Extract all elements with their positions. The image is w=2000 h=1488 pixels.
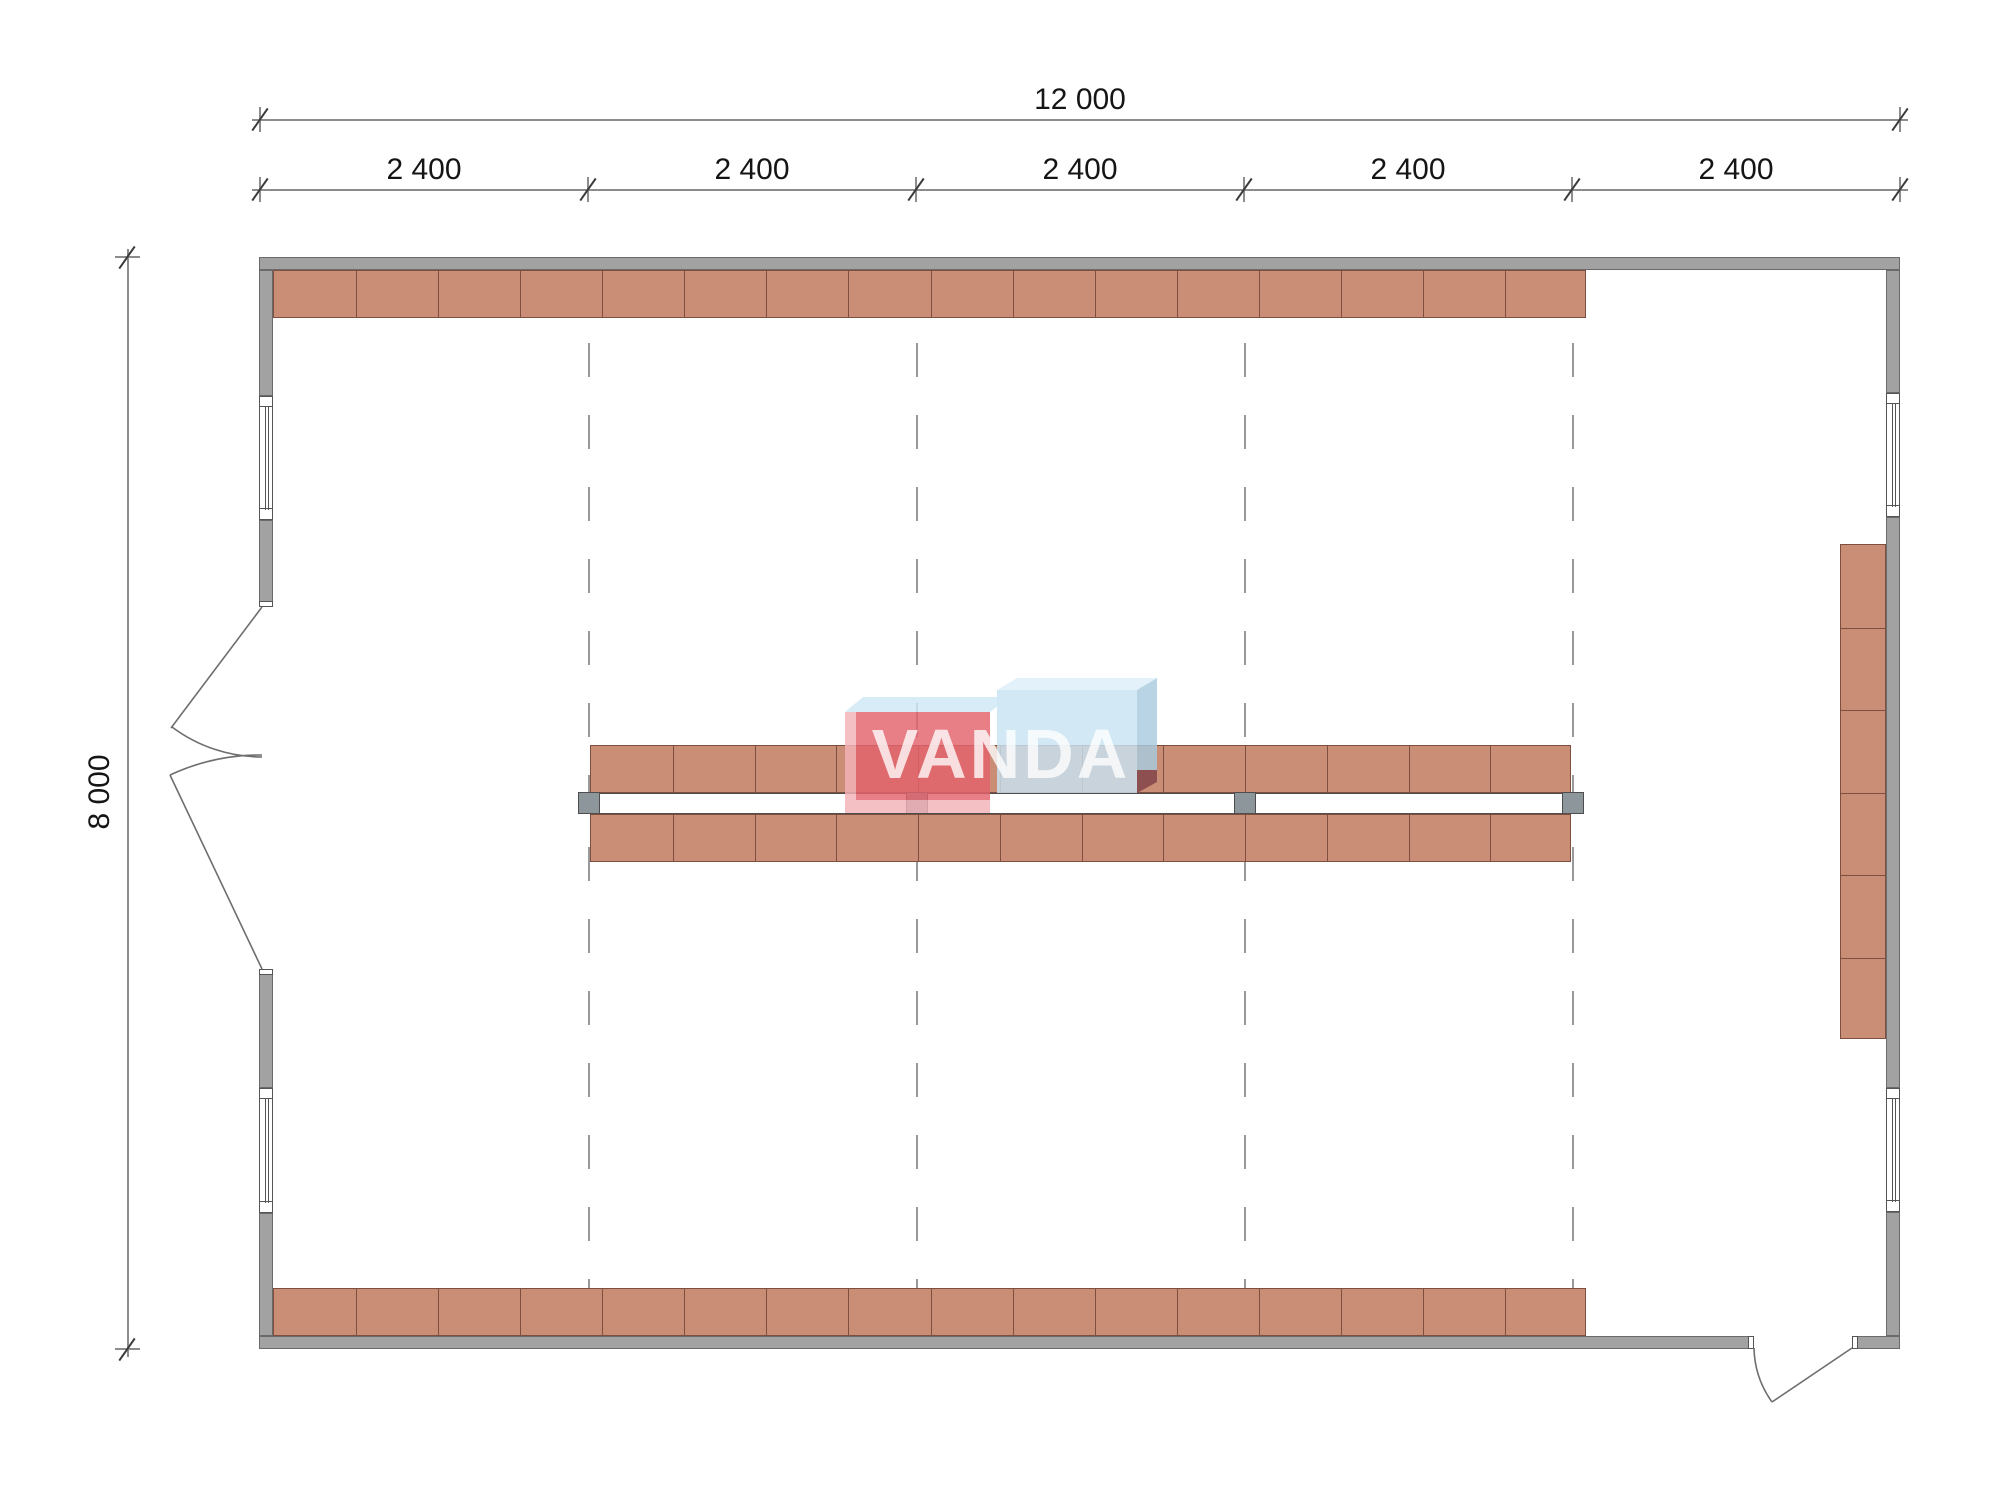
double-door-swing-arc: [172, 727, 262, 757]
double-door-leaf: [171, 607, 262, 728]
dimension-bay-label: 2 400: [1676, 153, 1796, 187]
dimension-height-label: 8 000: [83, 732, 117, 852]
dimension-bay-label: 2 400: [692, 153, 812, 187]
dimension-total-width-label: 12 000: [1005, 83, 1155, 117]
dimension-line: [127, 249, 129, 1357]
door-symbols: [0, 0, 2000, 1488]
double-door-swing-arc: [170, 755, 262, 775]
single-door-leaf: [1772, 1348, 1852, 1402]
double-door-leaf: [170, 775, 262, 969]
floor-plan-drawing: 12 000 2 400 2 400 2 400 2 400 2 400 8 0…: [0, 0, 2000, 1488]
dimension-line: [252, 189, 1908, 191]
dimension-bay-label: 2 400: [364, 153, 484, 187]
single-door-swing-arc: [1754, 1348, 1772, 1402]
dimension-bay-label: 2 400: [1348, 153, 1468, 187]
dimension-bay-label: 2 400: [1020, 153, 1140, 187]
dimension-line: [252, 119, 1908, 121]
